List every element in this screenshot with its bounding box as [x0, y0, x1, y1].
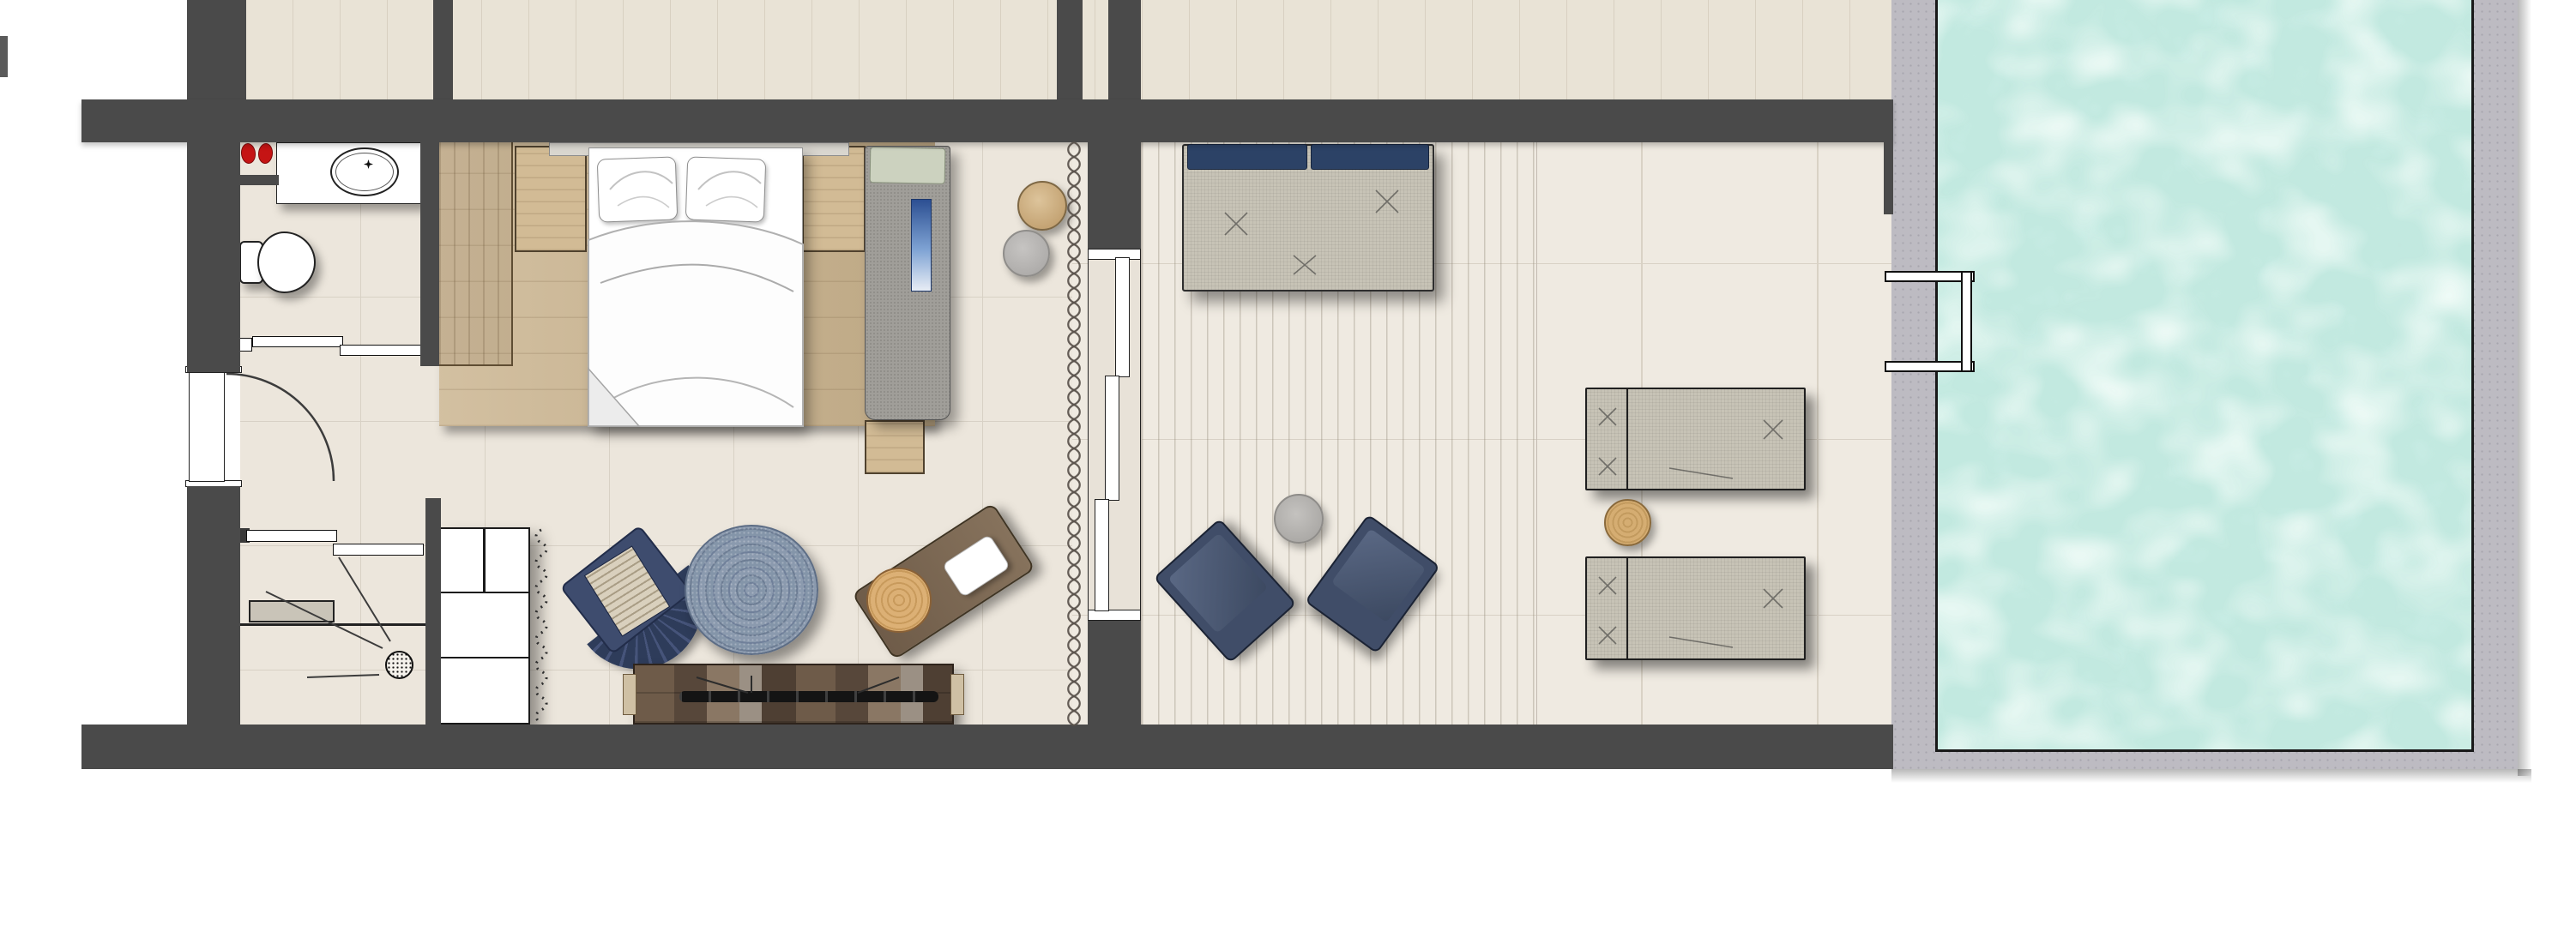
glass-door-panel: [1115, 257, 1130, 377]
sun-lounger-top: [1585, 388, 1806, 490]
terrace-door-stub-bottom: [1088, 621, 1141, 725]
pocket-door-panel: [252, 336, 343, 347]
pool-shadow-right: [2518, 0, 2531, 776]
left-edge-wall-fragment: [0, 36, 8, 77]
curtain-svg: [1064, 142, 1084, 725]
chaise-round-cushion: [866, 568, 932, 633]
pool-ladder-post: [1961, 271, 1972, 372]
terrace-door-stub-top: [1088, 142, 1141, 249]
wall-stub-top-c: [1108, 0, 1141, 99]
sofa-blue-pillow: [1311, 144, 1429, 170]
glass-door-panel: [1095, 499, 1109, 611]
daybed-blue-runner: [911, 199, 932, 292]
terrace-grout-line: [1817, 142, 1819, 725]
gray-daybed: [865, 146, 950, 420]
wall-stub-top-a: [433, 0, 453, 99]
sink-basin: [335, 153, 394, 191]
round-jute-rug: [685, 525, 818, 655]
pool-water: [1935, 0, 2474, 752]
left-wall-upper: [187, 142, 240, 372]
lounger-stitch-marks: [1587, 558, 1807, 662]
shelf-divider: [438, 592, 528, 593]
daybed-pillow: [870, 147, 946, 184]
white-shelf-unit: [437, 527, 530, 725]
wall-stub-top-b: [1057, 0, 1083, 99]
pocket-door-panel: [246, 530, 337, 542]
shelf-divider: [438, 657, 528, 658]
console-decor-lines: [678, 670, 952, 705]
console-arm-right: [950, 674, 964, 715]
pocket-door-panel: [340, 345, 422, 356]
sofa-blue-pillow: [1187, 144, 1307, 170]
console-arm-left: [623, 674, 636, 715]
duvet-folds: [588, 214, 803, 429]
bathroom-bedroom-wall: [420, 142, 439, 366]
pool-water-texture: [1938, 0, 2474, 752]
bottom-wall: [81, 725, 1893, 769]
glass-door-panel: [1105, 376, 1119, 501]
shelf-divider: [483, 529, 486, 592]
shower-living-wall: [425, 498, 441, 725]
oval-sink: [330, 147, 399, 196]
top-wall: [81, 99, 1893, 142]
door-swing-arc: [189, 360, 360, 497]
wardrobe-column: [439, 142, 513, 366]
wall-end-cap: [1884, 142, 1893, 214]
sun-lounger-bottom: [1585, 556, 1806, 660]
shower-spray-lines: [240, 549, 429, 686]
glass-door-jamb: [1088, 249, 1141, 260]
nightstand-right: [802, 146, 866, 252]
tan-pouf: [1017, 181, 1067, 231]
wall-stub-top-left: [187, 0, 246, 99]
nightstand-left: [515, 146, 587, 252]
pool-shadow-bottom: [1891, 769, 2531, 783]
left-wall-lower: [187, 486, 240, 725]
slipper-nook-stub: [238, 175, 279, 185]
lounger-stitch-marks: [1587, 389, 1807, 492]
floor-plan-canvas: [0, 0, 2576, 926]
dotted-garland: [530, 530, 552, 724]
gray-side-table: [1274, 494, 1324, 544]
daybed-wood-step: [865, 420, 925, 474]
gray-pouf: [1003, 230, 1050, 277]
wood-side-table: [1604, 499, 1651, 546]
